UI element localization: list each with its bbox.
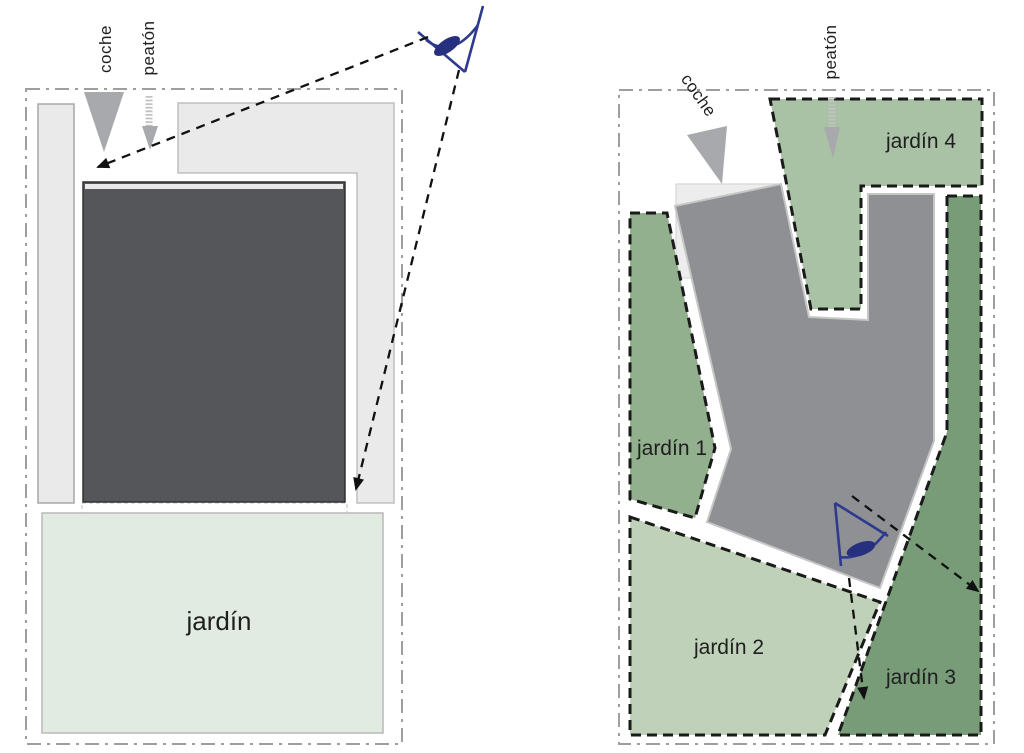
pedestrian-label-right: peatón (821, 25, 840, 80)
building-left-top-highlight (85, 184, 343, 189)
garden-label-left: jardín (185, 606, 251, 636)
garden3-label: jardín 3 (885, 666, 956, 689)
garden4-label: jardín 4 (885, 130, 956, 153)
building-left (83, 182, 345, 502)
garden1-label: jardín 1 (636, 437, 707, 460)
car-label-left: coche (96, 25, 115, 73)
car-arrow-left (84, 92, 124, 152)
right-scheme: coche peatón jardín 1 jardín 2 jardín 3 … (619, 25, 994, 745)
diagram-canvas: coche peatón jardín (0, 0, 1024, 753)
site-plan-diagram: { "left_panel": { "labels": { "car": "co… (0, 0, 1024, 753)
left-scheme: coche peatón jardín (26, 6, 483, 744)
pedestrian-label-left: peatón (139, 21, 158, 76)
pedestrian-arrowhead-left (142, 126, 158, 150)
garden2-label: jardín 2 (693, 636, 764, 659)
pavement-strip-left (38, 104, 74, 503)
eye-icon-left (418, 6, 483, 72)
car-label-right: coche (677, 70, 720, 120)
car-arrow-right (687, 126, 727, 184)
